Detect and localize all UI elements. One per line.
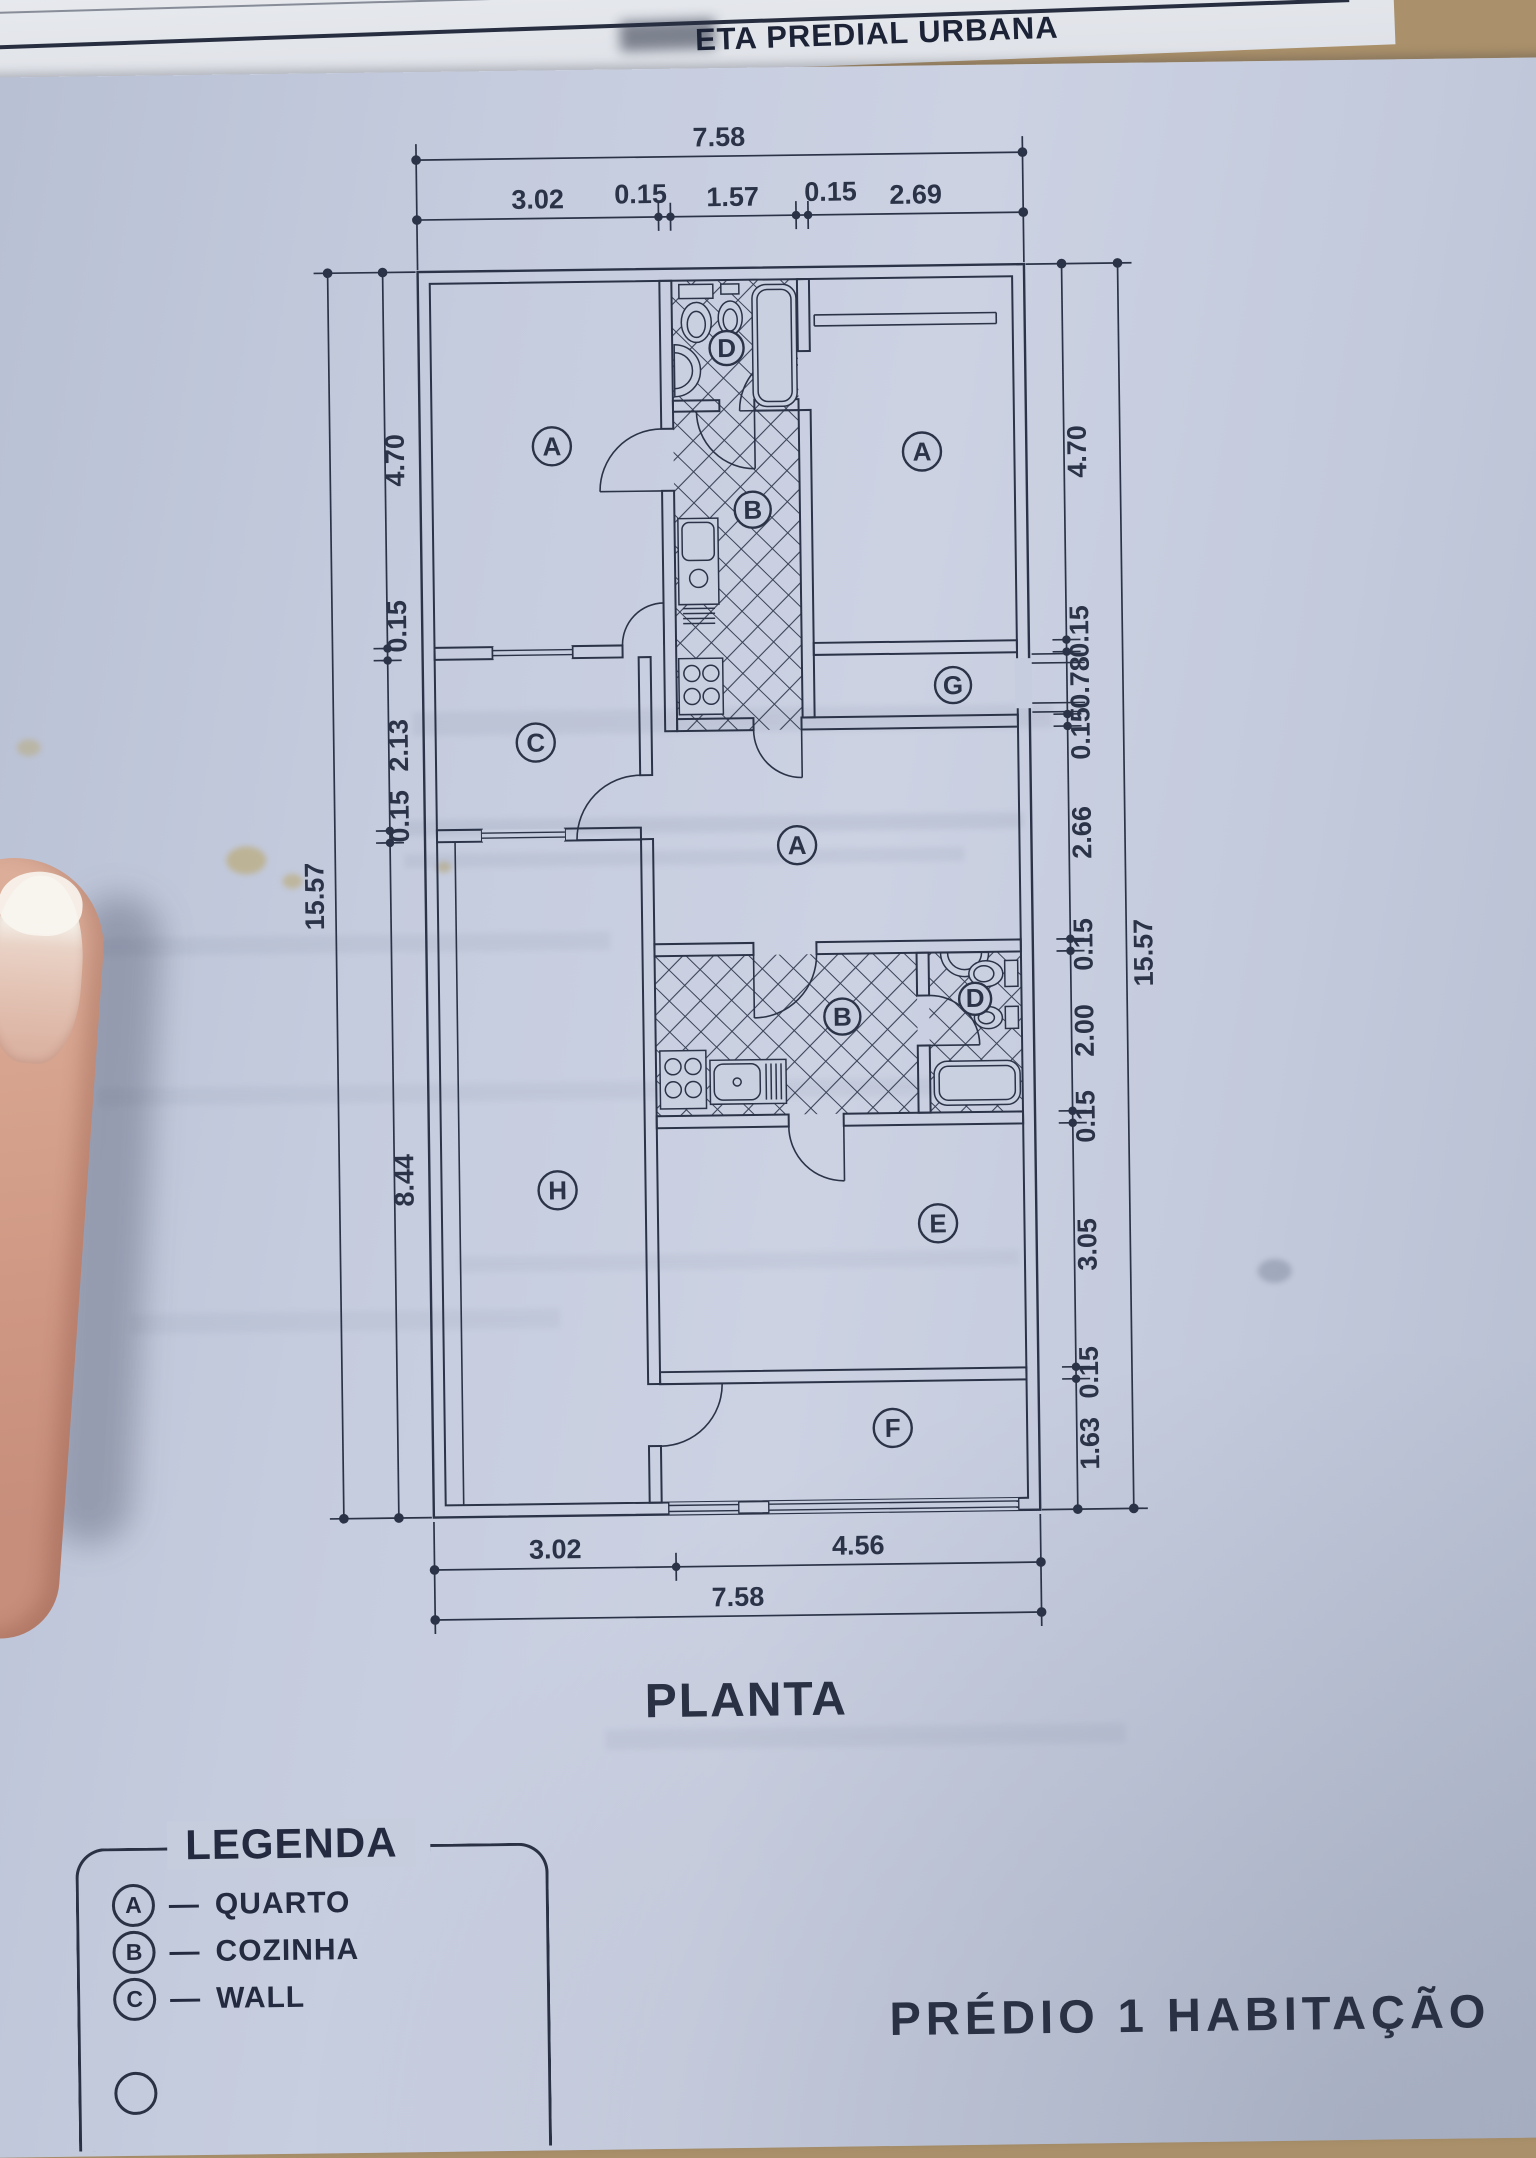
floor-plan-paper: A D A B C G A B D H E F xyxy=(0,57,1536,2158)
bathtub xyxy=(752,284,798,407)
toilet xyxy=(679,284,714,342)
svg-text:E: E xyxy=(929,1208,947,1238)
room-label: D xyxy=(959,983,991,1015)
legend-item-label: QUARTO xyxy=(215,1886,351,1922)
room-label: H xyxy=(538,1171,576,1209)
dim-right-seg: 0.15 xyxy=(1068,918,1099,971)
legend-item-label: WALL xyxy=(216,1980,305,2015)
bathtub xyxy=(934,1060,1021,1105)
legend-rows: A—QUARTOB—COZINHAC—WALL xyxy=(112,1877,534,2023)
dim-bottom-seg: 4.56 xyxy=(832,1530,885,1561)
floor-plan-drawing: A D A B C G A B D H E F xyxy=(175,91,1298,1895)
dim-right-seg: 0.15 xyxy=(1065,707,1096,760)
dim-top-seg: 0.15 xyxy=(614,179,667,210)
legend-item-label: COZINHA xyxy=(215,1932,359,1968)
dim-bottom-seg: 3.02 xyxy=(529,1534,582,1565)
svg-text:D: D xyxy=(717,333,736,363)
window xyxy=(482,829,565,842)
room-labels: A D A B C G A B D H E F xyxy=(511,328,997,1452)
room-label: E xyxy=(919,1204,957,1242)
legend-item: A—QUARTO xyxy=(112,1877,533,1929)
room-label: A xyxy=(533,427,571,465)
svg-text:D: D xyxy=(966,983,985,1013)
legend-item: C—WALL xyxy=(113,1971,534,2023)
svg-text:C: C xyxy=(526,727,545,757)
door-arc xyxy=(789,1126,845,1182)
door-arc xyxy=(599,429,662,492)
door-arc xyxy=(576,775,641,840)
room-label: A xyxy=(903,432,941,470)
dim-right-seg: 0.15 xyxy=(1074,1346,1105,1399)
dim-right-seg: 0.15 xyxy=(1070,1090,1101,1143)
bidet xyxy=(718,284,743,335)
dim-right-seg: 3.05 xyxy=(1072,1218,1103,1271)
legend-title: LEGENDA xyxy=(167,1818,416,1869)
dim-top-seg: 3.02 xyxy=(511,184,564,215)
room-label: A xyxy=(778,826,816,864)
svg-text:A: A xyxy=(542,431,561,461)
room-label: G xyxy=(935,667,971,703)
svg-text:H: H xyxy=(548,1175,567,1205)
dim-left-seg: 0.15 xyxy=(382,600,413,653)
footer-clipped-title: PRÉDIO 1 HABITAÇÃO xyxy=(889,1983,1491,2046)
kitchen-sink xyxy=(710,1059,787,1104)
door-arc xyxy=(622,603,664,646)
stove xyxy=(660,1050,707,1109)
dim-right-seg: 0.78 xyxy=(1065,656,1096,709)
dim-left-total: 15.57 xyxy=(299,862,330,930)
dim-top-total: 7.58 xyxy=(692,122,745,153)
paper-stain xyxy=(17,739,41,756)
svg-text:B: B xyxy=(833,1001,852,1031)
stove xyxy=(679,658,724,715)
legend-item-key: C xyxy=(113,1978,157,2022)
legend: LEGENDA A—QUARTOB—COZINHAC—WALL xyxy=(75,1818,559,2154)
dim-right-seg: 2.66 xyxy=(1067,806,1098,859)
plan-title: PLANTA xyxy=(644,1673,848,1729)
dim-left-seg: 4.70 xyxy=(380,434,411,487)
dim-top-seg: 1.57 xyxy=(706,182,759,213)
legend-item-dash: — xyxy=(170,1982,200,2016)
room-label: D xyxy=(709,331,743,365)
dim-left-seg: 8.44 xyxy=(389,1154,420,1207)
dim-top-seg: 0.15 xyxy=(804,176,857,207)
dim-right-seg: 4.70 xyxy=(1062,425,1093,478)
legend-item-key: A xyxy=(112,1884,156,1928)
window xyxy=(492,646,572,659)
door-arc xyxy=(754,729,803,778)
legend-item-key: B xyxy=(112,1931,156,1975)
dim-top-seg: 2.69 xyxy=(889,179,942,210)
room-label: C xyxy=(517,723,555,761)
room-label: B xyxy=(824,998,860,1034)
legend-item-dash: — xyxy=(169,1935,199,1969)
dim-right-seg: 0.15 xyxy=(1064,605,1095,658)
dim-left-seg: 0.15 xyxy=(384,790,415,843)
legend-item-dash: — xyxy=(169,1888,199,1922)
room-label: F xyxy=(874,1409,912,1447)
legend-item: B—COZINHA xyxy=(112,1924,533,1976)
dim-right-seg: 2.00 xyxy=(1069,1004,1100,1057)
svg-text:A: A xyxy=(788,830,807,860)
svg-text:G: G xyxy=(943,670,964,700)
svg-text:F: F xyxy=(885,1413,901,1443)
door-arc xyxy=(660,1383,723,1446)
dim-right-total: 15.57 xyxy=(1128,919,1159,987)
dim-left-seg: 2.13 xyxy=(383,719,414,772)
dim-bottom-total: 7.58 xyxy=(711,1582,764,1613)
dim-right-seg: 1.63 xyxy=(1075,1417,1106,1470)
svg-text:A: A xyxy=(912,436,931,466)
room-label: B xyxy=(734,491,770,527)
window xyxy=(669,1502,739,1515)
svg-text:B: B xyxy=(743,495,762,525)
